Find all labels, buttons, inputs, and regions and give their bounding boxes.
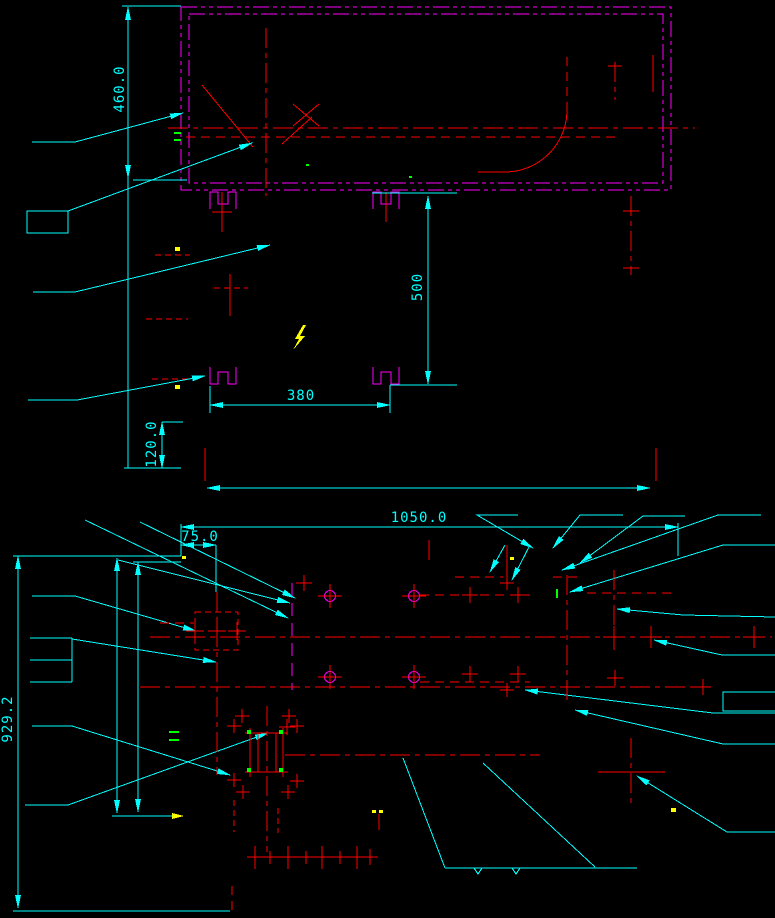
leader-line[interactable] xyxy=(32,726,230,775)
leader-line[interactable] xyxy=(25,733,268,805)
leader-line[interactable] xyxy=(654,640,775,655)
leader-line[interactable] xyxy=(33,245,270,292)
ground-tick xyxy=(474,868,482,874)
leader-line[interactable] xyxy=(525,690,775,713)
cad-viewport[interactable]: 460.0 120.0 500 380 xyxy=(0,0,775,918)
dim-500-label[interactable]: 500 xyxy=(410,273,426,301)
leader-line[interactable] xyxy=(562,515,761,570)
leader-line[interactable] xyxy=(403,758,445,868)
leader-line[interactable] xyxy=(477,515,533,548)
top-red-geometry[interactable] xyxy=(146,28,695,481)
green-marks xyxy=(169,132,558,772)
callout-bracket[interactable] xyxy=(30,638,72,682)
leader-line[interactable] xyxy=(580,516,685,563)
dim-380-label[interactable]: 380 xyxy=(287,388,315,404)
clamp-icon[interactable] xyxy=(210,367,236,384)
dim-75-label[interactable]: 75.0 xyxy=(181,529,219,545)
lightning-bolt-icon xyxy=(293,325,306,350)
leader-line[interactable] xyxy=(483,763,595,867)
dim-460-label[interactable]: 460.0 xyxy=(112,65,128,112)
leader-line[interactable] xyxy=(72,639,216,662)
top-dimensions[interactable]: 460.0 120.0 500 380 xyxy=(27,6,650,488)
right-leaders[interactable] xyxy=(403,515,775,874)
leader-line[interactable] xyxy=(118,560,290,603)
phantom-enclosure-border[interactable] xyxy=(181,7,671,190)
leader-line[interactable] xyxy=(490,545,505,572)
leader-line[interactable] xyxy=(617,609,775,617)
enclosure-inner-border[interactable] xyxy=(189,14,663,183)
leader-line[interactable] xyxy=(575,710,775,744)
callout-box[interactable] xyxy=(27,211,68,233)
enclosure-outer-border[interactable] xyxy=(181,7,671,190)
leader-line[interactable] xyxy=(32,113,183,142)
clamp-icon[interactable] xyxy=(373,367,399,384)
callout-bracket[interactable] xyxy=(723,692,775,711)
leader-line[interactable] xyxy=(553,515,623,548)
leader-line[interactable] xyxy=(32,596,196,631)
leader-line[interactable] xyxy=(512,545,530,580)
clamp-icon[interactable] xyxy=(210,192,236,209)
bottom-red-geometry[interactable] xyxy=(140,540,772,912)
dim-1050-label[interactable]: 1050.0 xyxy=(391,510,448,526)
top-view[interactable]: 460.0 120.0 500 380 xyxy=(27,6,695,488)
leader-line[interactable] xyxy=(570,545,775,592)
left-leaders[interactable] xyxy=(25,520,295,805)
bottom-view[interactable]: 1050.0 75.0 929.2 xyxy=(0,510,775,912)
leader-line[interactable] xyxy=(637,776,775,832)
dim-929-label[interactable]: 929.2 xyxy=(0,695,16,742)
leader-line[interactable] xyxy=(68,143,252,211)
ground-tick xyxy=(512,868,520,874)
dim-120-label[interactable]: 120.0 xyxy=(144,420,160,467)
cad-canvas[interactable]: 460.0 120.0 500 380 xyxy=(0,0,775,918)
